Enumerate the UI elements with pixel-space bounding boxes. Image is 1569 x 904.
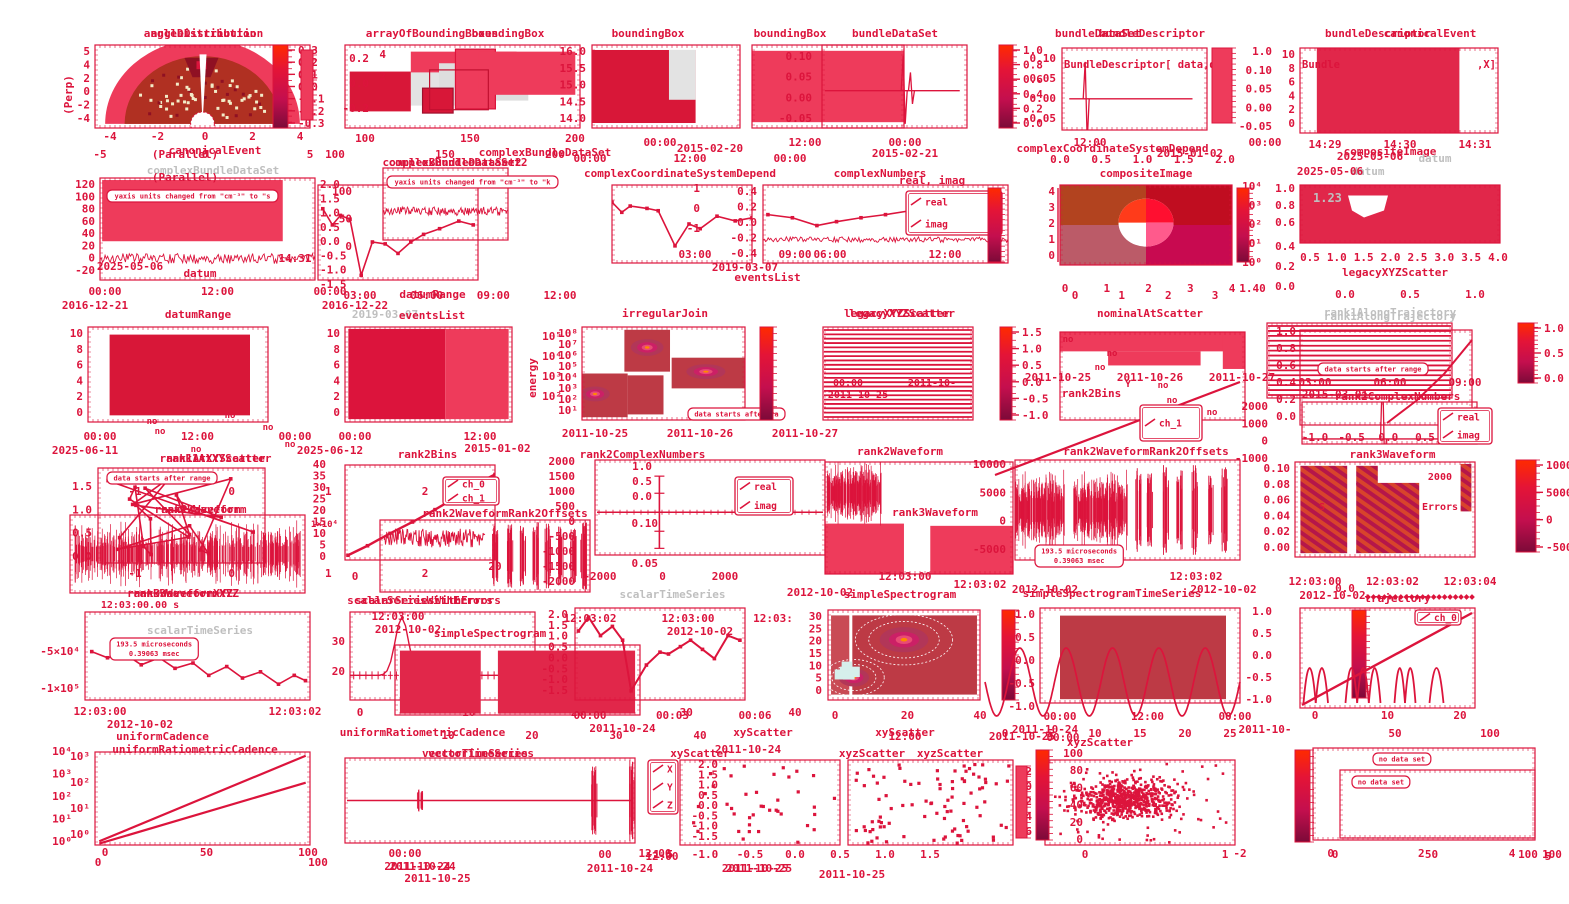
y-tick-label: 0.00 <box>786 91 813 104</box>
y-tick-label: 0 <box>1048 249 1055 262</box>
y-tick-label: 20 <box>82 239 95 252</box>
x-tick-label: 15 <box>1133 727 1146 740</box>
x-tick-label: 00:00 <box>1248 136 1281 149</box>
y-tick-label: 0.05 <box>1246 83 1273 96</box>
y-tick-label: 1500 <box>549 470 576 483</box>
x-tick-label: 40 <box>973 709 986 722</box>
x-tick-label: 1.5 <box>1354 251 1374 264</box>
y-tick-label: 10⁵ <box>542 330 562 343</box>
x-tick-label: 20 <box>901 709 914 722</box>
y-tick-label: 0.05 <box>632 557 659 570</box>
x-tick-label: 0 <box>228 485 235 498</box>
x-tick-label: 0 <box>102 846 109 859</box>
x-tick-label: 00:00 <box>1218 710 1251 723</box>
tick-label: -0.5 <box>1022 392 1049 405</box>
x-tick-label: 5 <box>307 148 314 161</box>
plot-title: angleDistribution <box>151 27 264 40</box>
simpleSpectrogramTimeSeries-content <box>1060 616 1226 700</box>
boundingBox-1-content <box>592 50 696 123</box>
y-tick-label: 0.0 <box>1252 649 1272 662</box>
y-tick-label: 5 <box>83 45 90 58</box>
x-tick-label: 2 <box>1418 847 1425 860</box>
y-tick-label: 120 <box>75 178 95 191</box>
y-tick-label: 2 <box>379 70 386 83</box>
rank2WaveformRank2Offsets-r-content <box>1015 465 1227 555</box>
legacyXYZScatter: legacyXYZScatterlegacyXYZScatter00:00201… <box>824 307 972 417</box>
x-tick-label: -0.5 <box>1338 431 1365 444</box>
y-tick-label: 0.2 <box>1275 260 1295 273</box>
y-tick-label: 10⁰ <box>52 835 72 848</box>
plot-title: legacyXYZScatter <box>849 307 955 320</box>
y-tick-label: 1.0 <box>1252 45 1272 58</box>
stray-text: no <box>1107 349 1118 359</box>
y-tick-label: 1.0 <box>1276 325 1296 338</box>
x-tick-label: 0 <box>202 130 209 143</box>
x-tick-label: 1.0 <box>1327 251 1347 264</box>
y-tick-label: 2 <box>83 72 90 85</box>
y-tick-label: 0.2 <box>1276 393 1296 406</box>
colorbar <box>1212 48 1236 123</box>
y-tick-label: 0 <box>1261 435 1268 448</box>
annotation: 193.5 microseconds0.39063 msec <box>110 638 198 660</box>
tick-label: 0 <box>1546 514 1553 527</box>
x-tick-label: 1.5 <box>1174 153 1194 166</box>
stray-text: 2011-10-25 <box>989 730 1055 743</box>
y-tick-label: 20 <box>1070 816 1083 829</box>
x-tick-label: 1 <box>325 567 332 580</box>
y-tick-label: 8 <box>333 343 340 356</box>
stray-text: Y <box>1125 379 1131 390</box>
y-tick-label: 1.0 <box>1252 605 1272 618</box>
uniformCadence: 10³10²10¹10⁰10⁴10³10²10¹10⁰0501000100 <box>52 745 328 869</box>
boundingBox-2-content <box>752 51 904 122</box>
y-tick-label: 5 <box>815 672 822 685</box>
y-tick-label: 5000 <box>980 486 1007 499</box>
stray-text: no <box>1158 381 1169 391</box>
x-tick-label: (Parallel) <box>152 148 218 161</box>
annotation-text: yaxis units changed from "cm⁻³" to "s <box>115 193 271 201</box>
stray-text: 2000 <box>1428 472 1452 483</box>
x-tick-label: 03:00 <box>343 289 376 302</box>
y-tick-label: 0 <box>345 240 352 253</box>
compositeImage-content <box>1060 185 1232 265</box>
stray-text: ,X] <box>1477 59 1496 71</box>
y-tick-label: 0.2 <box>737 201 757 214</box>
y-tick-label: -1.5 <box>542 684 569 697</box>
x-tick-label: 3 <box>1187 282 1194 295</box>
x-tick-label: 2015-01-02 <box>464 442 530 455</box>
y-tick-label: 0.10 <box>1264 462 1291 475</box>
y-tick-label: 60 <box>82 215 95 228</box>
y-tick-label: 8 <box>1288 62 1295 75</box>
legend-item: imag <box>925 220 948 231</box>
y-tick-label: 80 <box>1070 764 1083 777</box>
y-tick-label: 100 <box>75 190 95 203</box>
y-tick-label: 30 <box>809 610 822 623</box>
x-tick-label: 12:03:00 <box>1289 575 1342 588</box>
y-tick-label: 0.02 <box>1264 525 1291 538</box>
x-tick-label: 03:00 <box>678 248 711 261</box>
x-tick-label: 00:00 <box>83 430 116 443</box>
stray-text: 1×10⁴ <box>311 520 338 530</box>
colorbar <box>1036 750 1053 840</box>
x-tick-label: 2025-06-11 <box>52 444 119 457</box>
y-tick-label: 10 <box>1282 48 1295 61</box>
y-tick-label: 6 <box>1288 76 1295 89</box>
y-tick-label: 0.5 <box>320 221 340 234</box>
y-tick-label: 4 <box>1048 185 1055 198</box>
x-tick-label: 50 <box>1425 848 1438 861</box>
y-tick-label: 10² <box>70 776 90 789</box>
plot-title: simpleSpectrogramTimeSeries <box>1023 587 1202 600</box>
y-tick-label: 3 <box>1048 201 1055 214</box>
x-tick-label: 12:03:04 <box>1444 575 1497 588</box>
x-tick-label: 00:00 <box>388 847 421 860</box>
plot-title: xyzScatter <box>917 747 984 760</box>
legend-item: Y <box>667 783 673 794</box>
x-tick-label: 1.0 <box>875 848 895 861</box>
y-tick-label: 0.00 <box>1246 101 1273 114</box>
stray-text: S <box>1319 502 1325 513</box>
tick-label: -1.0 <box>1022 409 1049 422</box>
x-tick-label: -2 <box>151 130 164 143</box>
y-tick-label: -1.5 <box>692 830 719 843</box>
stray-text: no <box>1207 408 1218 418</box>
y-tick-label: 100 <box>332 185 352 198</box>
stray-text: 2012-10-02 <box>667 625 733 638</box>
y-tick-label: -5000 <box>973 543 1006 556</box>
x-tick-label: -4 <box>103 130 117 143</box>
legend-item: real <box>754 482 777 493</box>
y-tick-label: 0 <box>88 252 95 265</box>
y-tick-label: 1 <box>1048 233 1055 246</box>
y-tick-label: -0.5 <box>1246 671 1273 684</box>
plot-title: 2025-05-06 <box>1297 165 1364 178</box>
y-tick-label: 0.10 <box>1030 52 1057 65</box>
x-tick-label: 1 <box>1222 848 1229 861</box>
y-tick-label: 10 <box>809 659 822 672</box>
y-tick-label: 0.00 <box>1264 541 1291 554</box>
x-tick-label: 20 <box>525 729 538 742</box>
y-tick-label: 0 <box>1288 117 1295 130</box>
x-tick-label: uniformRatiometricCadence <box>340 726 506 739</box>
x-tick-label: 0 <box>95 856 102 869</box>
stray-text: scalarTimeSeries <box>147 624 253 637</box>
x-tick-label: -1.0 <box>692 848 719 861</box>
x-tick-label: 100 <box>1518 848 1538 861</box>
y-tick-label: 10⁴ <box>542 350 562 363</box>
x-tick-label: 09:00 <box>1448 376 1481 389</box>
y-tick-label: 1.0 <box>72 503 92 516</box>
plot-title: xyScatter <box>875 726 935 739</box>
stray-text: 2012-10-02 <box>375 623 441 636</box>
y-tick-label: 0 <box>999 515 1006 528</box>
stray-text: 2011-10-24 <box>587 862 654 875</box>
y-tick-label: 0.05 <box>786 71 813 84</box>
y-tick-label: 2 <box>1048 217 1055 230</box>
x-tick-label: -1.0 <box>1302 431 1329 444</box>
x-tick-label: 06:00 <box>410 289 443 302</box>
x-tick-label: 0 <box>1082 848 1089 861</box>
x-tick-label: -2000 <box>583 570 616 583</box>
y-tick-label: 0.10 <box>786 50 813 63</box>
x-tick-label: 00:00 <box>88 285 121 298</box>
tick-label: 1.0 <box>1544 322 1564 335</box>
x-tick-label: 200 <box>565 132 585 145</box>
x-tick-label: -1.5 <box>647 848 674 861</box>
y-tick-label: -2000 <box>542 575 575 588</box>
annotation: 193.5 microseconds0.39063 msec <box>1035 545 1123 567</box>
x-tick-label: 0 <box>1332 848 1339 861</box>
y-tick-label: 10³ <box>52 768 72 781</box>
x-tick-label: rank2ComplexNumbers <box>1335 390 1461 403</box>
y-tick-label: -20 <box>75 264 95 277</box>
plot-title: scalarSeriesWithErrors <box>355 594 501 607</box>
stray-text: no <box>225 411 236 421</box>
colorbar: 0.30.20.10.0-0.1-0.2-0.3 <box>273 44 325 130</box>
y-tick-label: 0.06 <box>1264 494 1291 507</box>
x-tick-label: 0.0 <box>1335 288 1355 301</box>
trajectory-content <box>1304 668 1444 703</box>
y-tick-label: 4 <box>1288 89 1295 102</box>
annotation: no data set <box>1352 776 1410 788</box>
y-tick-label: 14.5 <box>560 95 587 108</box>
x-tick-label: uniformCadence <box>116 730 209 743</box>
y-tick-label: 10⁴ <box>52 745 72 758</box>
stray-text: 2025-05-06 <box>97 260 164 273</box>
legend-item: ch_1 <box>1159 419 1182 430</box>
x-tick-label: 1.0 <box>1465 288 1485 301</box>
rank3Waveform-m: rank3Waveform1000050000-500012:03:002012… <box>825 458 1078 596</box>
x-tick-label: 12:00 <box>543 289 576 302</box>
y-tick-label: -1.0 <box>320 264 347 277</box>
vectorTimeSeries-content <box>347 760 635 841</box>
x-tick-label: 40 <box>788 706 801 719</box>
x-tick-label: 12:00 <box>1131 710 1164 723</box>
y-tick-label: 80 <box>82 203 95 216</box>
x-tick-label: 12:00 <box>181 430 214 443</box>
legend-item: ch_0 <box>1434 613 1457 624</box>
y-tick-label: 0 <box>333 406 340 419</box>
x-tick-label: 0 <box>832 709 839 722</box>
x-tick-label: 12:00 <box>673 152 706 165</box>
plot-title: datumRange <box>165 308 232 321</box>
y-tick-label: -0.4 <box>731 247 758 260</box>
y-tick-label: 0.0 <box>1276 410 1296 423</box>
x-tick-label: 12:03:02 <box>1170 570 1223 583</box>
x-tick-label: 00:00 <box>573 152 606 165</box>
x-tick-label: rank1AtXYScatter <box>166 452 272 465</box>
x-tick-label: 3.5 <box>1461 251 1481 264</box>
x-tick-label: 0 <box>352 570 359 583</box>
colorbar <box>760 327 777 420</box>
y-tick-label: 10¹ <box>52 813 72 826</box>
x-tick-label: 12:03:00 <box>74 705 127 718</box>
x-tick-label: 12:03:02 <box>1366 575 1419 588</box>
x-tick-label: 20 <box>1453 709 1466 722</box>
x-tick-label: 0.0 <box>785 848 805 861</box>
y-tick-label: 0.0 <box>1015 654 1035 667</box>
plot-title: simpleSpectrogram <box>844 588 957 601</box>
stray-text: 14:31 <box>278 252 311 265</box>
plot-title: complexBundleDataSet2 <box>388 156 527 169</box>
x-tick-label: 2011-10- <box>1239 723 1292 736</box>
simpleSpectrogram-r: simpleSpectrogram30252015105002040 <box>809 588 987 722</box>
axis-label: energy <box>526 358 539 398</box>
stray-text: no <box>155 427 166 437</box>
y-tick-label: 0.0 <box>737 216 757 229</box>
y-tick-label: 500 <box>555 500 575 513</box>
y-tick-label: 0.6 <box>1275 216 1295 229</box>
y-tick-label: 0 <box>568 515 575 528</box>
x-tick-label: 100 <box>1542 848 1562 861</box>
stray-text: no <box>1095 363 1106 373</box>
x-tick-label: 0.5 <box>1300 251 1320 264</box>
y-tick-label: 1000 <box>549 485 576 498</box>
plot-title: canonicalEvent <box>1384 27 1477 40</box>
annotation: no data set <box>1373 753 1431 765</box>
x-tick-label: 4 <box>297 130 304 143</box>
y-tick-label: 0.5 <box>1252 627 1272 640</box>
x-tick-label: rank2Bins <box>398 448 458 461</box>
y-tick-label: 4 <box>83 58 90 71</box>
y-tick-label: 40 <box>1070 799 1083 812</box>
y-tick-label: 0.08 <box>1264 478 1291 491</box>
y-tick-label: 0.0 <box>632 490 652 503</box>
x-tick-label: 12:03:02 <box>269 705 322 718</box>
y-tick-label: 0.00 <box>1030 92 1057 105</box>
y-tick-label: 40 <box>82 227 95 240</box>
x-tick-label: 3 <box>1212 289 1219 302</box>
annotation-text: 193.5 microseconds <box>1041 548 1117 556</box>
datumRange: datumRange108642000:0012:0000:002025-06-… <box>52 308 363 465</box>
y-tick-label: 0 <box>1076 833 1083 846</box>
y-tick-label: 100 <box>1063 747 1083 760</box>
y-tick-label: 0.10 <box>1246 64 1273 77</box>
x-tick-label: 00:00 <box>1043 710 1076 723</box>
simpleSpectrogram-l: simpleSpectrogram <box>400 627 635 714</box>
nominalAtScatter-content <box>1060 332 1245 369</box>
datumRange-content <box>110 335 250 416</box>
x-tick-label: 0 <box>1072 289 1079 302</box>
x-tick-label: 14:31 <box>1458 138 1491 151</box>
stray-text: 12:03:00.00 s <box>101 600 179 611</box>
x-tick-label: 2011-10-25 <box>1025 371 1091 384</box>
x-tick-label: 2015-02-21 <box>872 147 939 160</box>
plot-title: boundingBox <box>472 27 545 40</box>
x-tick-label: 4 <box>1509 847 1516 860</box>
legend: realimag <box>735 477 793 515</box>
annotation-text: data starts after range <box>114 475 211 483</box>
stray-text: 12:03:02 <box>564 612 617 625</box>
x-tick-label: 2016-12-21 <box>62 299 129 312</box>
y-tick-label: 10¹ <box>558 404 578 417</box>
x-tick-label: eventsList <box>734 271 800 284</box>
tick-label: 5000 <box>1546 486 1569 499</box>
x-tick-label: 100 <box>1480 727 1500 740</box>
y-tick-label: -1 <box>687 222 701 235</box>
y-tick-label: -0.5 <box>320 249 347 262</box>
plot-title: bundleDataSet <box>852 27 938 40</box>
plot-title: rank1AlongTrajectory <box>1324 310 1457 323</box>
plot-title: xyScatter <box>733 726 793 739</box>
y-tick-label: 10000 <box>973 458 1006 471</box>
x-tick-label: 2011-10-27 <box>772 427 838 440</box>
colorbar: 1000050000-5000 <box>1516 459 1569 554</box>
x-tick-label: 2011-10-24 <box>589 722 656 735</box>
y-tick-label: 0.2 <box>349 52 369 65</box>
y-tick-label: 6 <box>76 359 83 372</box>
x-tick-label: 0 <box>357 706 364 719</box>
x-tick-label: 100 <box>355 132 375 145</box>
x-tick-label: 0.5 <box>1091 153 1111 166</box>
y-tick-label: 60 <box>1070 781 1083 794</box>
x-tick-label: 150 <box>460 132 480 145</box>
angleDistribution-content <box>105 39 300 136</box>
tick-label: 0.0 <box>1544 372 1564 385</box>
y-tick-label: 14.0 <box>560 112 587 125</box>
x-tick-label: 00:00 <box>773 152 806 165</box>
axis-label: (Perp) <box>62 75 75 115</box>
legend: ch_0ch_1 <box>443 477 499 505</box>
stray-text: no <box>1063 335 1074 345</box>
plot-title: rank2WaveformRank2Offsets <box>1063 445 1229 458</box>
y-tick-label: 50 <box>339 213 352 226</box>
plot-title: complexCoordinateSystemDepend <box>584 167 776 180</box>
y-tick-label: 0 <box>815 684 822 697</box>
annotation-text: 193.5 microseconds <box>116 641 192 649</box>
stray-text: Errors <box>1422 502 1458 513</box>
x-tick-label: 06:00 <box>1373 376 1406 389</box>
y-tick-label: -5×10⁴ <box>40 645 80 658</box>
y-tick-label: 0.05 <box>1030 72 1057 85</box>
y-tick-label: -1.0 <box>1009 700 1036 713</box>
x-tick-label: 0.0 <box>1378 431 1398 444</box>
y-tick-label: -0.2 <box>343 102 370 115</box>
x-tick-label: 00:06 <box>738 709 771 722</box>
y-tick-label: 0 <box>83 85 90 98</box>
x-tick-label: 25 <box>1223 727 1236 740</box>
tick-label: 0.5 <box>1544 347 1564 360</box>
stray-text: 12:03:00 <box>662 612 715 625</box>
noDataSet: -20245050100100 <box>1233 847 1562 863</box>
y-tick-label: -0.05 <box>1023 112 1056 125</box>
y-tick-label: -0.5 <box>1009 677 1036 690</box>
x-tick-label: 2000 <box>712 570 739 583</box>
x-tick-label: rank3Waveform <box>1349 448 1435 461</box>
x-tick-label: 12:00 <box>201 285 234 298</box>
x-tick-label: 20 <box>488 560 501 573</box>
x-tick-label: 1.0 <box>1133 153 1153 166</box>
stray-text: no <box>285 440 296 450</box>
x-tick-label: 10 <box>1381 709 1394 722</box>
tick-label: -5000 <box>1546 541 1569 554</box>
stray-text: 2011-10-25 <box>819 868 885 881</box>
plot-title: rank3Waveform <box>892 506 978 519</box>
x-tick-label: 50 <box>1388 727 1401 740</box>
stray-text: 0.0 <box>1335 582 1355 595</box>
x-tick-label: 00:00 <box>573 709 606 722</box>
y-tick-label: -1000 <box>542 545 575 558</box>
x-tick-label: scalarTimeSeries <box>620 588 726 601</box>
vectorTimeSeries: 00:0012:002011-10-242011-10-242011-10-25… <box>347 760 885 885</box>
x-tick-label: 2 <box>249 130 256 143</box>
tick-label: 1.0 <box>1022 343 1042 356</box>
x-tick-label: 1 <box>1118 289 1125 302</box>
x-tick-label: 09:00 <box>477 289 510 302</box>
y-tick-label: 2000 <box>549 455 576 468</box>
y-tick-label: -2 <box>77 99 90 112</box>
